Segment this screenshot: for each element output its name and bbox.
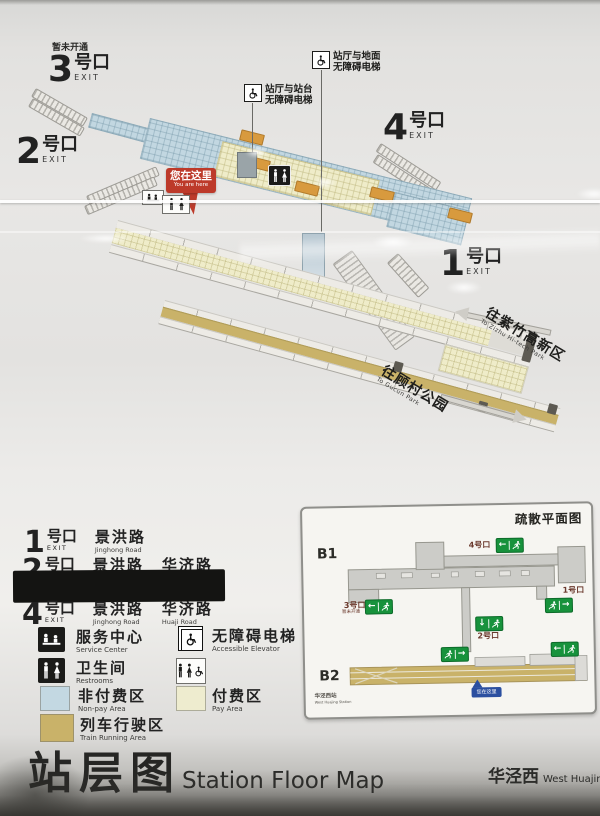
evac-exit3-label: 3号口	[344, 602, 366, 610]
elevator-ground-label: 站厅与地面无障碍电梯	[312, 51, 381, 74]
ceiling-light-reflection	[576, 188, 600, 200]
redacted-exit3-row	[13, 569, 225, 602]
non-pay-area-swatch	[40, 686, 70, 711]
photo-bottom-shadow	[0, 770, 600, 816]
wheelchair-icon	[312, 51, 330, 69]
train-area-swatch	[40, 714, 74, 742]
glass-seam	[0, 200, 600, 203]
photo-top-shadow	[0, 0, 600, 5]
evac-sign-exit3	[365, 599, 393, 615]
evac-sign-b2-left	[551, 642, 579, 658]
arrow-right-icon	[562, 601, 570, 610]
ceiling-light-reflection	[446, 281, 482, 294]
exit2-label: 2 号口EXIT	[16, 134, 78, 170]
arrow-left-icon	[554, 645, 562, 654]
evac-exit4-label: 4号口	[469, 541, 491, 549]
running-man-icon	[511, 541, 520, 550]
pay-area-swatch	[176, 686, 206, 711]
ceiling-light-reflection	[78, 234, 134, 243]
restrooms-icon	[38, 658, 65, 683]
evacuation-plan-inset: 疏散平面图 B1 B2	[300, 501, 597, 720]
running-man-icon	[491, 619, 500, 628]
evac-station-name: 华泾西站 West Huajing Station	[315, 694, 352, 705]
wheelchair-icon	[244, 84, 262, 102]
evac-exit3-note: 暂未开通	[342, 611, 360, 616]
legend-pay-label: 付费区Pay Area	[212, 689, 263, 713]
arrow-left-icon	[499, 541, 507, 550]
ceiling-light-reflection	[245, 146, 269, 158]
evac-you-are-here-marker: 您在这里	[471, 687, 501, 698]
running-man-icon	[548, 601, 557, 610]
service-center-icon	[38, 627, 65, 652]
glass-seam	[0, 231, 600, 233]
station-sign-photo: 往紫竹高新区 To Zizhu Hi-tech Park 往顾村公园 To Gu…	[0, 0, 600, 816]
running-man-icon	[380, 602, 389, 611]
evac-exit1-label: 1号口	[563, 586, 585, 594]
legend-elevator-label: 无障碍电梯Accessible Elevator	[212, 629, 297, 653]
arrow-left-icon	[368, 602, 376, 611]
evac-sign-b2-right	[441, 647, 469, 663]
legend-train-label: 列车行驶区Train Running Area	[80, 718, 165, 742]
legend-non-pay-label: 非付费区Non-pay Area	[78, 689, 146, 713]
legend-restroom-label: 卫生间Restrooms	[76, 661, 127, 685]
elevator-platform-label: 站厅与站台无障碍电梯	[244, 84, 313, 107]
evac-sign-exit2	[475, 616, 503, 632]
evac-exit2-label: 2号口	[477, 632, 499, 640]
restrooms-icon	[162, 195, 190, 214]
restrooms-icon	[268, 165, 291, 186]
accessible-elevator-icon	[178, 626, 203, 651]
exit3-label: 3 号口EXIT	[48, 52, 110, 88]
evac-sign-exit1	[545, 598, 573, 614]
ceiling-light-reflection	[314, 177, 336, 188]
you-are-here-callout: 您在这里 You are here	[166, 168, 216, 193]
leader-line	[321, 70, 322, 232]
accessible-restroom-icon	[176, 658, 206, 684]
legend-service-label: 服务中心Service Center	[76, 630, 144, 654]
exit4-label: 4 号口EXIT	[383, 110, 445, 146]
running-man-icon	[444, 650, 453, 659]
evac-sign-exit4	[496, 538, 524, 554]
arrow-down-icon	[478, 619, 486, 628]
arrow-right-icon	[458, 650, 466, 659]
running-man-icon	[566, 645, 575, 654]
